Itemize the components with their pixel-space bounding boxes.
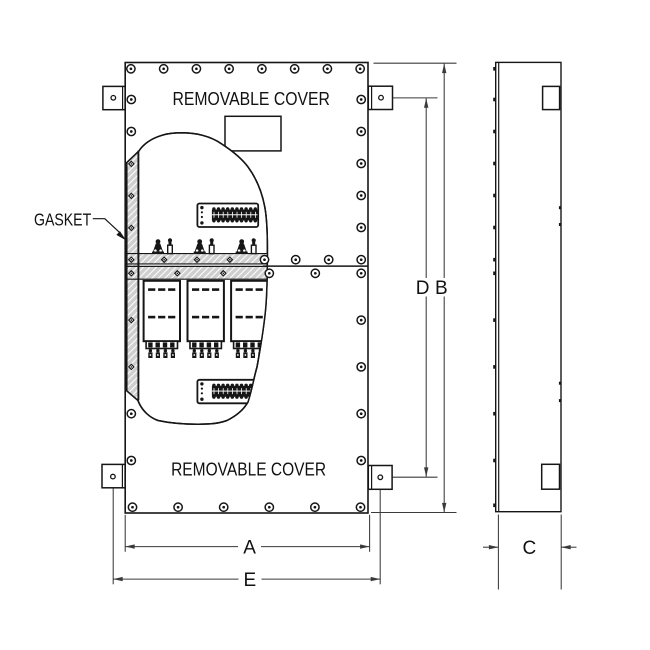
- svg-text:GASKET: GASKET: [34, 209, 91, 229]
- svg-text:REMOVABLE COVER: REMOVABLE COVER: [172, 89, 330, 109]
- svg-text:C: C: [523, 538, 537, 559]
- svg-text:D: D: [416, 278, 430, 299]
- svg-text:REMOVABLE COVER: REMOVABLE COVER: [171, 459, 326, 479]
- svg-text:A: A: [243, 537, 256, 558]
- svg-text:E: E: [244, 570, 257, 591]
- svg-text:B: B: [435, 278, 448, 299]
